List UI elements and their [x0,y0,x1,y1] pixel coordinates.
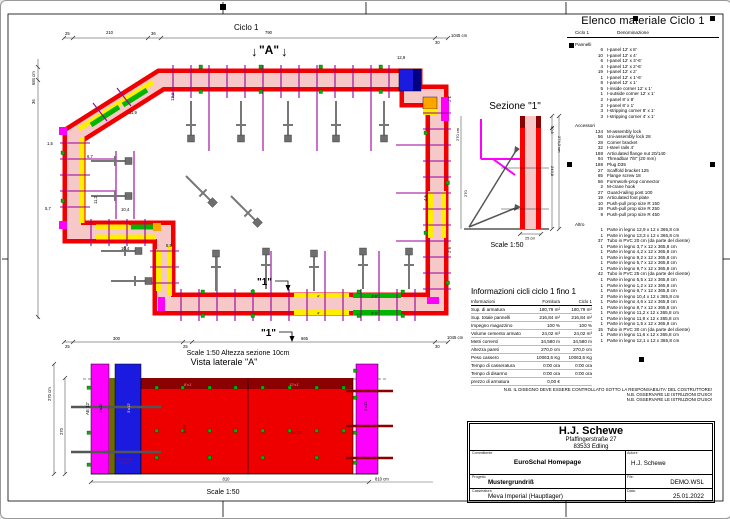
svg-text:3'-6': 3'-6' [371,295,378,299]
svg-text:274,3 cm: 274,3 cm [557,136,562,153]
sezione-title: Sezione "1" [489,101,541,112]
svg-text:210: 210 [106,30,114,35]
svg-text:5,7: 5,7 [45,206,51,211]
svg-text:3'x12': 3'x12' [126,403,131,413]
svg-text:4,6: 4,6 [423,195,428,201]
note-line: N.B. OSSERVARE LE ISTRUZIONI D'USO! [401,397,712,402]
svg-text:11,2: 11,2 [93,195,98,204]
navy-end-panel [413,69,421,91]
material-item: 3I-stripping corner 4' x 1' [567,114,719,120]
magenta-corner [59,221,67,229]
svg-text:790: 790 [265,30,273,35]
svg-text:270: 270 [59,427,64,435]
magenta-corner [158,297,165,311]
title-block-company: H.J. Schewe Pfaffingerstraße 27 83533 Ed… [470,424,712,451]
props-cluster [91,101,414,291]
info-table-body: Sup. di armatura180,79 m²180,79 m²Sup. t… [471,306,592,386]
concrete-core [525,116,536,229]
info-row: Volume cemento armato24,02 m³24,02 m³ [471,330,592,338]
info-table: Informazioni cicli ciclo 1 fino 1 Inform… [471,287,592,386]
section-a-label: "A" [259,43,279,57]
wood-filler [109,378,115,474]
formwork-cell: Casseratura Meva Imperial (Hauptlager) [470,488,626,502]
fold-mark [639,357,644,362]
drawing-sheet: Ciclo 1 ↓ "A" ↓ [0,0,730,519]
top-panel [536,116,541,128]
svg-text:3'-6': 3'-6' [371,312,378,316]
guard-rail-bracket [481,119,520,175]
info-row: Tempo di disarmo0:00 ora0:00 ora [471,370,592,378]
orange-corner [423,97,437,109]
svg-text:25: 25 [65,31,70,36]
date-label: Data: [627,489,636,493]
info-row: Sup. totale pannelli216,84 m²216,84 m² [471,314,592,322]
svg-text:12'x1': 12'x1' [289,382,299,387]
svg-text:11,9: 11,9 [129,110,138,115]
author-cell: Autore H.J. Schewe [625,450,712,474]
material-list-header: Ciclo 1 Denominazione [567,30,719,38]
material-header-qty: Ciclo 1 [575,30,605,36]
material-list-title: Elenco materiale Ciclo 1 [567,15,719,28]
svg-text:1,5: 1,5 [47,141,53,146]
title-block: H.J. Schewe Pfaffingerstraße 27 83533 Ed… [467,421,715,503]
svg-text:6,7: 6,7 [87,154,93,159]
svg-text:12,9: 12,9 [397,55,406,60]
svg-text:30: 30 [435,344,440,349]
file-cell: File: DEMO.WSL [625,474,712,488]
info-row: Peso cassero10063,5 Kg10063,5 Kg [471,354,592,362]
fold-mark [220,4,226,10]
svg-text:810 cm: 810 cm [375,477,389,482]
author-label: Autore [627,451,638,455]
svg-text:1045 cm: 1045 cm [447,335,464,340]
info-table-title: Informazioni cicli ciclo 1 fino 1 [471,287,592,296]
svg-text:"1": "1" [257,277,272,288]
magenta-corner [59,127,67,135]
svg-text:243,8: 243,8 [550,166,555,177]
sezione-dims [461,114,561,236]
file-value: DEMO.WSL [670,479,704,486]
info-row: Metri correnti34,580 m34,580 m [471,338,592,346]
client-value: EuroSchal Homepage [470,459,625,466]
side-view-scale: Scale 1:50 [206,489,239,496]
svg-text:AE 12': AE 12' [85,402,90,415]
file-label: File: [627,475,634,479]
project-value: Mustergrundriß [488,479,534,486]
svg-text:36: 36 [31,99,36,104]
svg-text:12,1: 12,1 [170,92,175,101]
client-cell: Committente EuroSchal Homepage [470,450,626,474]
section-a-arrow: ↓ [251,44,258,59]
formwork-value: Meva Imperial (Hauptlager) [488,493,563,500]
svg-text:270: 270 [463,190,468,197]
svg-text:25: 25 [183,344,188,349]
svg-text:4': 4' [317,295,320,299]
info-row: Tempo di casseratura0:00 ora0:00 ora [471,362,592,370]
info-table-header: Informazioni Fornitura Ciclo 1 [471,299,592,306]
sezione-view: Sezione "1" [455,101,562,249]
svg-text:5,5: 5,5 [166,243,172,248]
info-col-ciclo: Ciclo 1 [560,299,592,304]
svg-text:2'x12': 2'x12' [363,401,368,411]
svg-text:25: 25 [65,344,70,349]
date-value: 25.01.2022 [673,493,704,500]
svg-text:8'x1': 8'x1' [184,382,192,387]
svg-text:1045 cm: 1045 cm [451,33,468,38]
svg-text:2'x12': 2'x12' [98,403,103,413]
project-label: Progetto [472,475,486,479]
plan-title: Ciclo 1 [234,23,259,32]
svg-text:12'x8': 12'x8' [291,430,302,435]
top-panel-strip [141,378,353,389]
svg-text:3,7: 3,7 [447,96,452,102]
svg-text:10,4: 10,4 [121,207,130,212]
formwork-face [536,116,541,229]
plan-view: Ciclo 1 ↓ "A" ↓ [31,23,468,357]
svg-text:4': 4' [317,312,320,316]
svg-text:665: 665 [301,336,309,341]
notes: N.B. IL DISEGNO DEVE ESSERE CONTROLLATO … [401,387,712,403]
svg-text:25 cm: 25 cm [525,237,535,241]
svg-text:810: 810 [223,477,231,482]
info-row: Impegno magazzino100 %100 % [471,322,592,330]
svg-text:13,3 x 12: 13,3 x 12 [117,461,129,465]
svg-text:36: 36 [151,31,156,36]
info-col-informazioni: Informazioni [471,299,524,304]
stop-end-panel [91,364,109,474]
side-view: Vista laterale "A" [47,357,433,496]
svg-text:270 cm: 270 cm [455,127,460,141]
main-panel-area [141,389,353,474]
side-view-title: Vista laterale "A" [191,357,258,367]
magenta-corner [427,297,439,304]
info-col-fornitura: Fornitura [524,299,560,304]
svg-text:30,5: 30,5 [550,126,555,135]
author-value: H.J. Schewe [631,460,666,467]
formwork-face [520,116,525,229]
info-row: Altezza pareti270,0 cm270,0 cm [471,346,592,354]
info-row: Sup. di armatura180,79 m²180,79 m² [471,306,592,314]
svg-text:30: 30 [435,40,440,45]
yellow-corner [423,109,437,115]
material-header-name: Denominazione [605,30,717,36]
date-cell: Data: 25.01.2022 [625,488,712,502]
company-name: H.J. Schewe [470,425,712,437]
section-a-arrow: ↓ [281,44,288,59]
project-cell: Progetto Mustergrundriß [470,474,626,488]
svg-text:"1": "1" [261,328,276,339]
svg-text:10,4: 10,4 [121,246,130,251]
svg-text:300: 300 [113,336,121,341]
info-row: prezzo di armatura0,00 € [471,378,592,386]
sezione-scale: Scale 1:50 [490,242,523,249]
svg-text:9,2: 9,2 [447,247,452,253]
svg-text:684 cm: 684 cm [31,71,36,85]
plan-scale-note: Scale 1:50 Altezza sezione 10cm [187,350,290,357]
svg-text:270 cm: 270 cm [47,387,52,401]
top-panel [520,116,525,128]
client-label: Committente [472,451,492,455]
orange-corner [153,223,161,231]
svg-text:8'x8': 8'x8' [182,424,187,433]
material-item: 9Push-pull prop size R 450 [567,212,719,218]
